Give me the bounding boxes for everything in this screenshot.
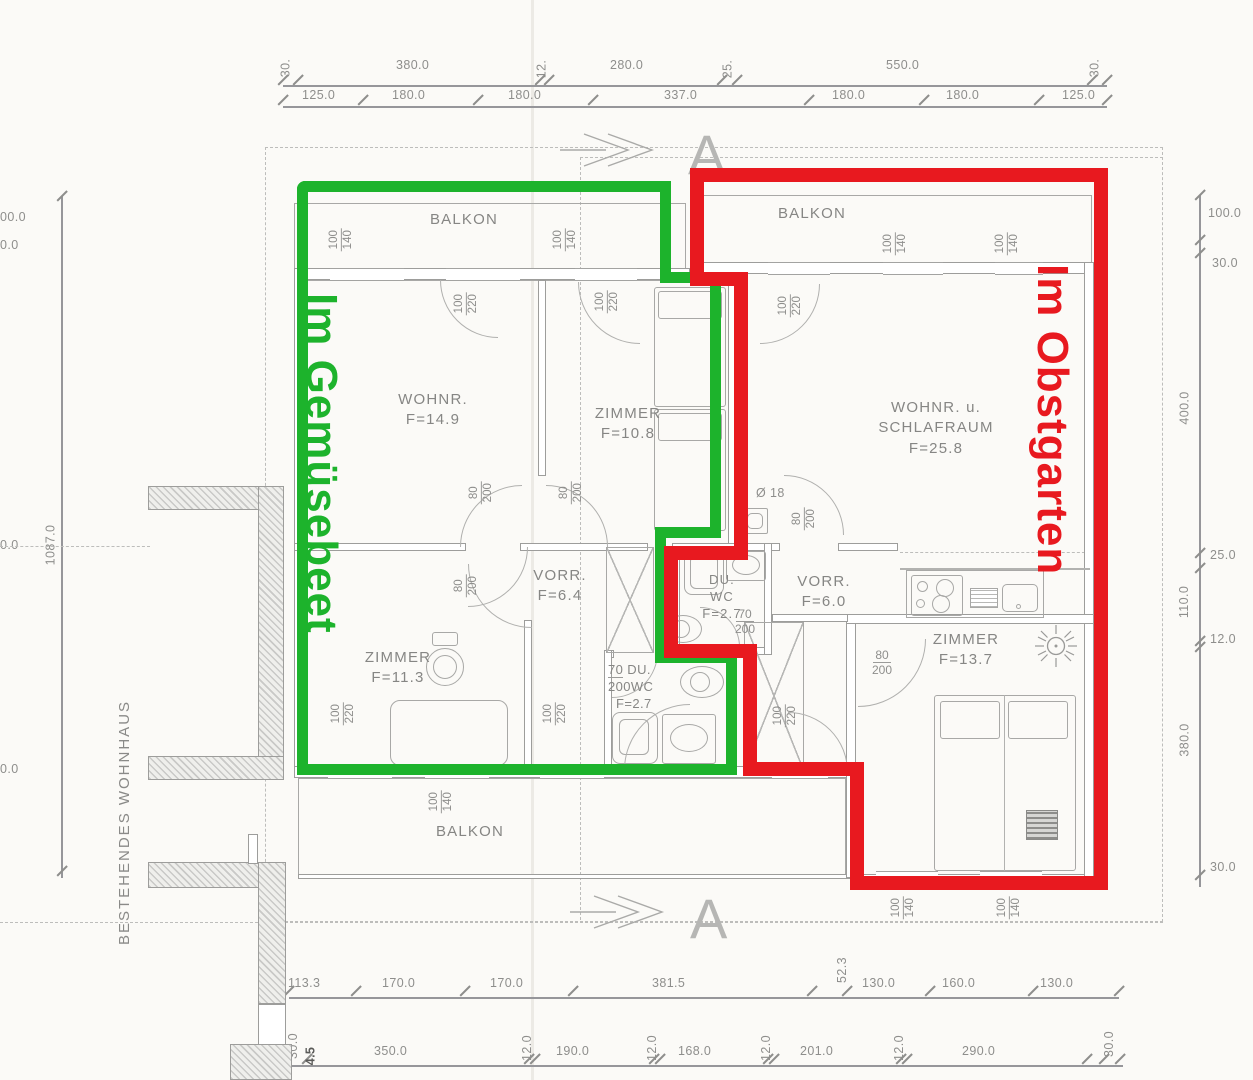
room-label-balkon: BALKON (430, 210, 498, 230)
dim-label: 100.0 (1208, 206, 1241, 220)
wall-segment (838, 543, 898, 551)
dim-label: 12.0 (645, 1035, 659, 1061)
dim-tick (472, 94, 483, 105)
room-label-wohnr: WOHNR. F=14.9 (398, 390, 468, 431)
dish-rack (970, 588, 998, 608)
dim-label: 30.0 (1210, 860, 1236, 874)
door-size-80-200: 80 200 (872, 648, 892, 678)
dim-tick (806, 985, 817, 996)
duct-shaft-inner (747, 513, 763, 529)
dim-tick (1033, 94, 1044, 105)
room-label-vorraum2: VORR. F=6.0 (797, 572, 851, 613)
window-size-100-140: 100140 (994, 232, 1021, 255)
dim-label: 12. (534, 60, 548, 79)
existing-wall (258, 486, 284, 780)
stove-burner (932, 595, 950, 613)
unit-outline-green (297, 764, 737, 775)
dim-line (1199, 195, 1201, 887)
plant-table-inner (433, 655, 457, 679)
dim-tick (459, 985, 470, 996)
dim-tick (918, 94, 929, 105)
dim-label: 4.5 (303, 1047, 317, 1066)
lamp-sun-icon (1032, 622, 1080, 670)
door-size-80-200: 80200 (468, 481, 495, 504)
dim-label: 180.0 (946, 88, 979, 102)
dim-label: 180.0 (392, 88, 425, 102)
dim-label: 290.0 (962, 1044, 995, 1058)
window (883, 262, 943, 275)
dim-tick (803, 94, 814, 105)
unit-outline-red (743, 762, 864, 776)
dim-label: 170.0 (382, 976, 415, 990)
floorplan-scan: 30. 380.0 12. 280.0 25. 550.0 30. 125.0 … (0, 0, 1253, 1080)
unit-outline-red (743, 644, 757, 776)
dim-label: 30.0 (1212, 256, 1238, 270)
dim-label-edge: 0.0 (0, 238, 19, 252)
dim-label: 130.0 (1040, 976, 1073, 990)
room-label-vorraum1: VORR. F=6.4 (533, 566, 587, 607)
dim-label-total-height: 1087.0 (43, 525, 57, 566)
dim-label: 12.0 (520, 1035, 534, 1061)
unit-outline-red (664, 546, 678, 658)
dim-label: 381.5 (652, 976, 685, 990)
stove-burner (917, 581, 928, 592)
dim-label: 190.0 (556, 1044, 589, 1058)
dim-label: 12.0 (892, 1035, 906, 1061)
unit-outline-green (297, 181, 671, 192)
dim-tick (1113, 985, 1124, 996)
dim-tick (1027, 985, 1038, 996)
room-label-zimmer-right: ZIMMER F=13.7 (933, 630, 999, 671)
door-size-100-220: 100220 (330, 702, 357, 725)
unit-outline-red (734, 272, 748, 560)
dim-tick (841, 985, 852, 996)
dim-label: 550.0 (886, 58, 919, 72)
unit-title-red: Im Obstgarten (1027, 264, 1077, 575)
dim-label: 170.0 (490, 976, 523, 990)
dim-tick (277, 94, 288, 105)
existing-wall (258, 862, 286, 1004)
dim-tick (1081, 1053, 1092, 1064)
dim-line (283, 106, 1107, 108)
table (390, 700, 508, 766)
dim-label: 130.0 (862, 976, 895, 990)
dim-tick (924, 985, 935, 996)
window (768, 262, 830, 275)
window (446, 268, 520, 281)
dim-tick (1101, 74, 1112, 85)
dim-label: 12.0 (759, 1035, 773, 1061)
unit-outline-red (1094, 168, 1108, 890)
room-label-schlafraum: WOHNR. u. SCHLAFRAUM F=25.8 (878, 398, 993, 459)
dim-label: 180.0 (832, 88, 865, 102)
door-size-100-220: 100220 (772, 704, 799, 727)
shaft-cross (606, 547, 654, 653)
dim-label: 30.0 (1102, 1031, 1116, 1057)
dim-label: 113.3 (288, 976, 320, 990)
section-arrow-icon (568, 888, 688, 932)
door-size-80-200: 80200 (791, 507, 818, 530)
window-size-100-140: 100140 (428, 790, 455, 813)
dim-label: 160.0 (942, 976, 975, 990)
dim-line (287, 1065, 1123, 1067)
existing-building-label: BESTEHENDES WOHNHAUS (116, 700, 133, 945)
room-label-balkon: BALKON (436, 822, 504, 842)
existing-wall (230, 1044, 292, 1080)
dim-label: 110.0 (1177, 586, 1191, 618)
bed-divider-line (1004, 695, 1005, 871)
dim-label: 12.0 (1210, 632, 1236, 646)
dim-label: 337.0 (664, 88, 697, 102)
window-size-100-140: 100140 (890, 896, 917, 919)
wall-segment (772, 614, 848, 622)
dim-label: 125.0 (1062, 88, 1095, 102)
room-label-zimmer-top: ZIMMER F=10.8 (595, 404, 661, 445)
dim-tick (567, 985, 578, 996)
existing-wall (148, 862, 270, 888)
dim-label-edge: 00.0 (0, 210, 26, 224)
dim-label: 25. (720, 60, 734, 79)
dash-line (0, 546, 150, 547)
dim-label: 380.0 (396, 58, 429, 72)
dim-tick (587, 94, 598, 105)
pillow (1008, 701, 1068, 739)
dim-tick (1114, 1053, 1125, 1064)
window-size-100-140: 100140 (328, 228, 355, 251)
door-size-100-220: 100220 (777, 294, 804, 317)
section-letter: A (690, 886, 727, 951)
unit-outline-red (690, 168, 704, 286)
unit-outline-red (690, 168, 1108, 182)
dim-line (283, 85, 1107, 87)
dim-label: 30. (278, 59, 292, 78)
dim-label: 180.0 (508, 88, 541, 102)
dim-line (289, 997, 1119, 999)
dim-label: 25.0 (1210, 548, 1236, 562)
unit-outline-red (850, 762, 864, 890)
door-size-100-220: 100220 (453, 292, 480, 315)
window-size-100-140: 100140 (882, 232, 909, 255)
dim-label: 280.0 (610, 58, 643, 72)
dim-label: 125.0 (302, 88, 335, 102)
unit-outline-green (660, 181, 671, 283)
nightstand (1026, 810, 1058, 840)
dim-line (61, 196, 63, 878)
window-size-100-140: 100140 (996, 896, 1023, 919)
stove-burner (916, 599, 925, 608)
section-arrow-icon (558, 126, 678, 170)
balcony-top-right (690, 195, 1092, 267)
existing-wall (148, 756, 284, 780)
dim-label: 380.0 (1178, 723, 1192, 756)
cabinet (432, 632, 458, 646)
balcony-door (575, 268, 637, 281)
dim-tick (350, 985, 361, 996)
dim-label-edge: 0.0 (0, 762, 19, 776)
wall-segment (538, 280, 546, 476)
window-size-100-140: 100140 (552, 228, 579, 251)
dim-tick (357, 94, 368, 105)
room-label-duwc2: 70 DU. 200WC F=2.7 (608, 662, 653, 713)
wall-segment (1084, 262, 1094, 880)
door-size-80-200: 80200 (453, 574, 480, 597)
pillow (940, 701, 1000, 739)
dim-tick (1101, 94, 1112, 105)
dim-label: 168.0 (678, 1044, 711, 1058)
balcony-bottom (298, 778, 846, 878)
unit-outline-green (726, 652, 737, 775)
room-label-balkon: BALKON (778, 204, 846, 224)
sink-drain (1016, 604, 1021, 609)
door-size-100-220: 100220 (542, 702, 569, 725)
dim-label: 201.0 (800, 1044, 833, 1058)
wall-segment (524, 620, 532, 772)
door-size-80-200: 80200 (558, 481, 585, 504)
dim-label-edge: 0.0 (0, 538, 19, 552)
dim-label: 30. (1087, 59, 1101, 78)
toilet-seat (690, 672, 710, 692)
door-size-100-220: 100220 (594, 290, 621, 313)
existing-wall (248, 834, 258, 864)
window (330, 268, 404, 281)
dim-label: 52.3 (835, 957, 849, 983)
dim-label: 350.0 (374, 1044, 407, 1058)
dim-label: 400.0 (1178, 391, 1192, 424)
dim-tick (292, 74, 303, 85)
diameter-note: Ø 18 (756, 486, 785, 500)
room-label-zimmer-left: ZIMMER F=11.3 (365, 648, 431, 689)
unit-outline-green (710, 272, 721, 538)
door-size-70-200: 70 200 (735, 607, 755, 637)
unit-outline-red (850, 876, 1108, 890)
unit-title-green: Im Gemüsebeet (296, 293, 346, 634)
